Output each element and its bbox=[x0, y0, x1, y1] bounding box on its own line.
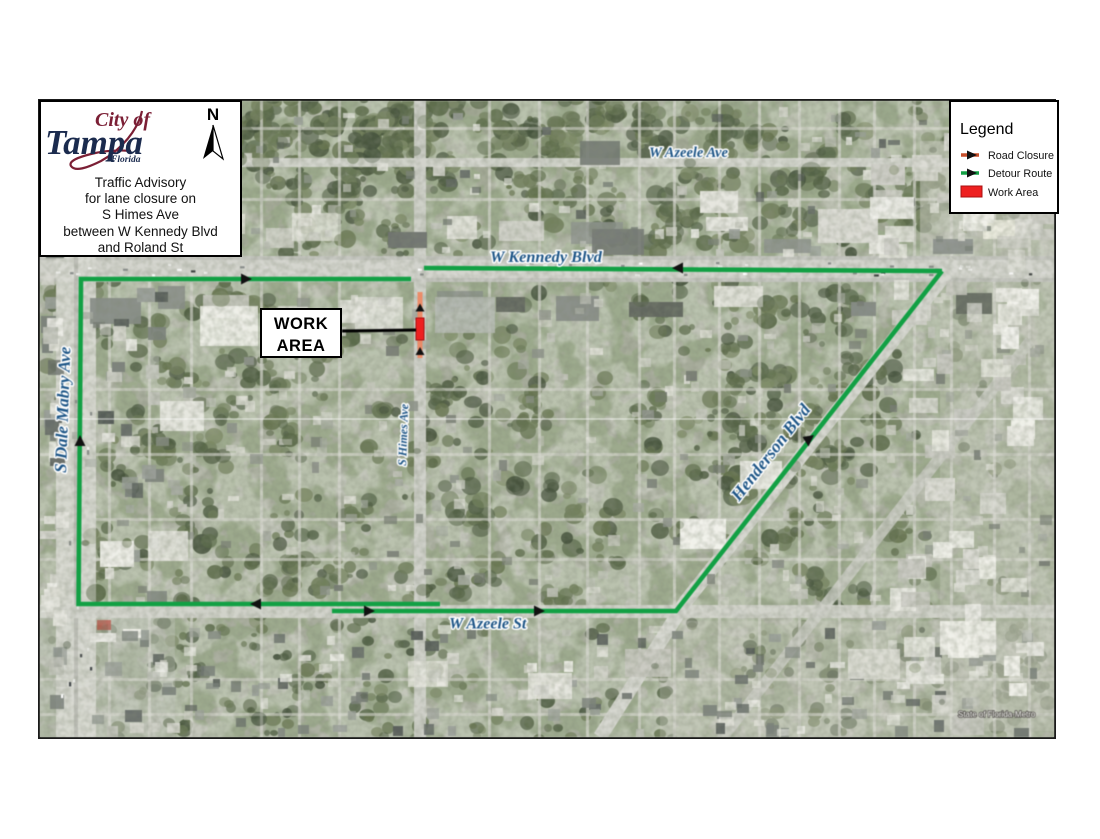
svg-text:W Kennedy Blvd: W Kennedy Blvd bbox=[490, 247, 603, 266]
svg-text:Work Area: Work Area bbox=[988, 187, 1038, 199]
svg-text:S Himes Ave: S Himes Ave bbox=[395, 403, 411, 466]
svg-text:W Azeele St: W Azeele St bbox=[449, 616, 527, 633]
svg-text:W Azeele Ave: W Azeele Ave bbox=[649, 145, 728, 161]
svg-text:Florida: Florida bbox=[110, 155, 141, 165]
svg-text:Detour Route: Detour Route bbox=[988, 168, 1052, 180]
svg-text:Road Closure: Road Closure bbox=[988, 150, 1054, 162]
svg-text:State of Florida-Metro: State of Florida-Metro bbox=[958, 710, 1036, 719]
